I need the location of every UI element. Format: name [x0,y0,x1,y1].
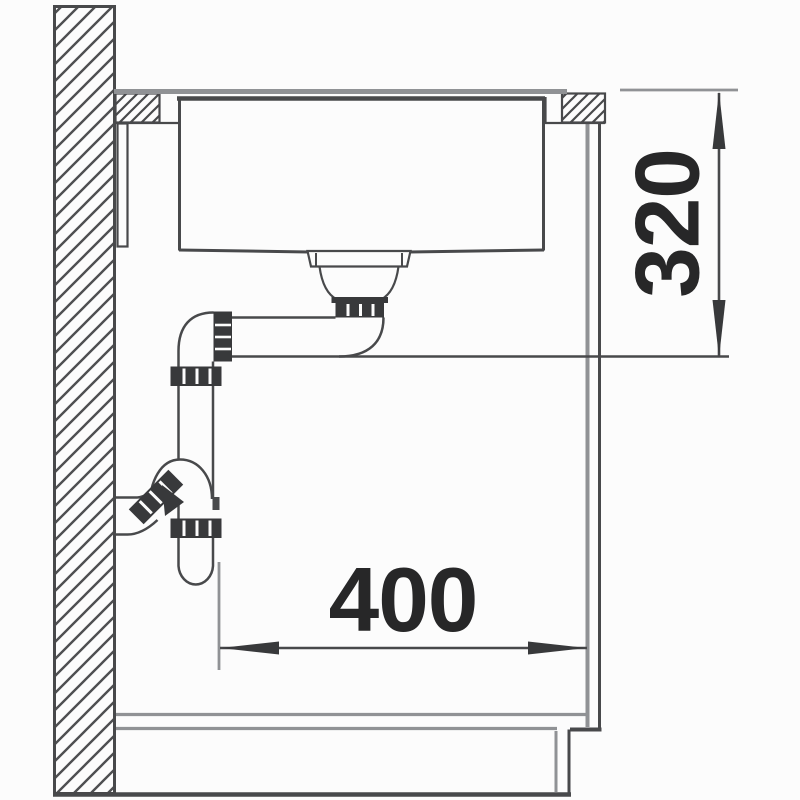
dimension-value-400: 400 [250,555,556,646]
pipe-bend-outer [339,318,384,357]
trap-assembly [115,312,232,585]
dim-320-arrow-up [713,92,726,150]
countertop-right-section [562,94,605,123]
wall-section [55,7,115,794]
strainer-bowl-right [381,267,399,300]
wall-hatch [55,7,115,794]
wall-panel-strip [118,124,128,247]
sink-bottom-left [179,250,309,252]
countertop-left-section [116,94,160,123]
strainer-bowl-left [320,267,338,300]
strainer-flange [308,251,411,267]
sink-bottom-right [410,250,545,252]
countertop [114,92,605,124]
installation-drawing: 320 400 [0,0,800,800]
strainer-collar [332,297,389,303]
sink-basin [177,99,545,253]
elbow-outer-curve [179,313,214,367]
dimension-value-320: 320 [623,74,714,374]
cabinet [116,124,602,794]
trap-clip [213,497,220,510]
dim-320-arrow-down [713,300,726,358]
trap-cup [179,538,214,584]
drain-strainer [308,251,411,318]
